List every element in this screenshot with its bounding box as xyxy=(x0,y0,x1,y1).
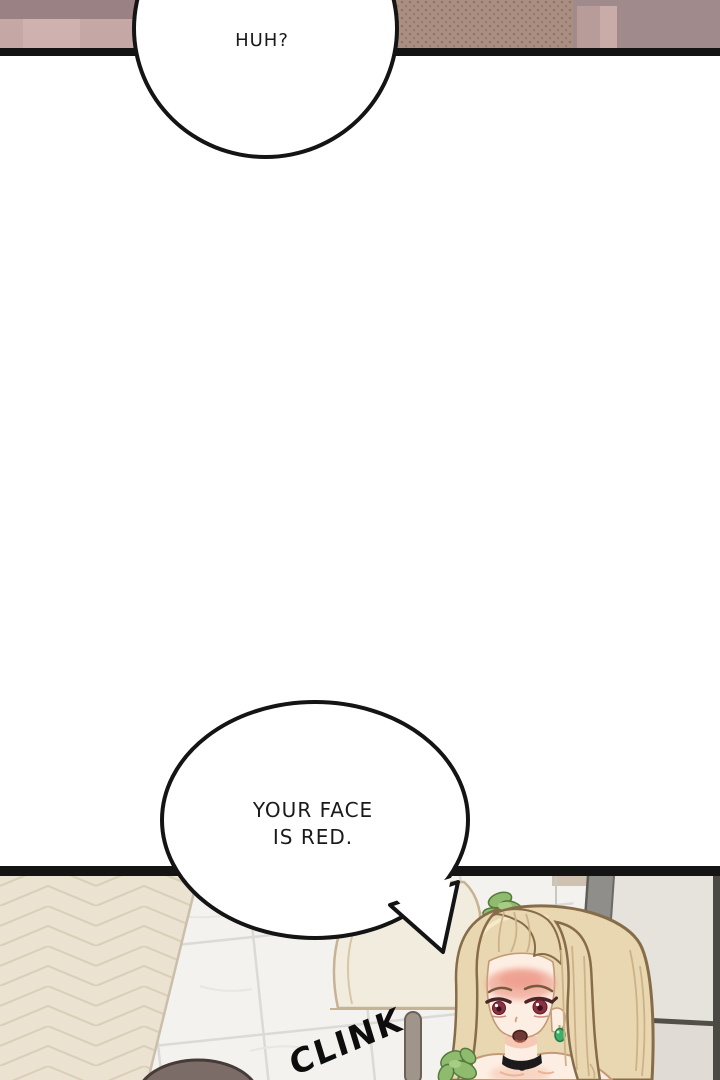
pole xyxy=(405,1012,421,1080)
face-red-line1: YOUR FACE xyxy=(223,797,403,824)
face-red-line2: IS RED. xyxy=(223,824,403,851)
speech-bubble-face-red-text: YOUR FACE IS RED. xyxy=(223,797,403,851)
comic-page: CLINK xyxy=(0,0,720,1080)
strip-knit-texture xyxy=(384,0,573,50)
speech-bubble-huh-text: HUH? xyxy=(182,30,342,51)
speech-bubble-huh xyxy=(132,0,399,159)
strip-light-block xyxy=(23,19,80,50)
mouth xyxy=(513,1031,527,1042)
strip-right-stripe2 xyxy=(600,6,617,50)
strip-right-stripe1 xyxy=(577,6,600,50)
